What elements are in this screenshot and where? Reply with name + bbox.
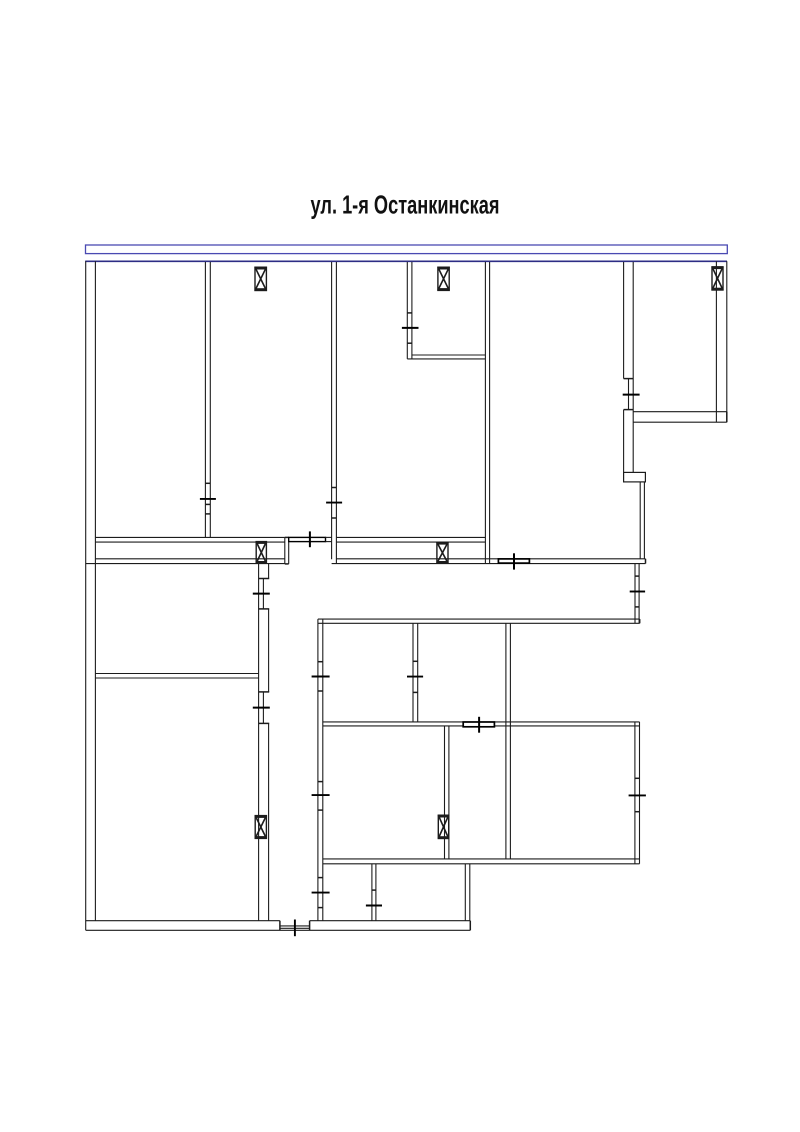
svg-text:ул. 1-я Останкинская: ул. 1-я Останкинская: [311, 190, 500, 219]
